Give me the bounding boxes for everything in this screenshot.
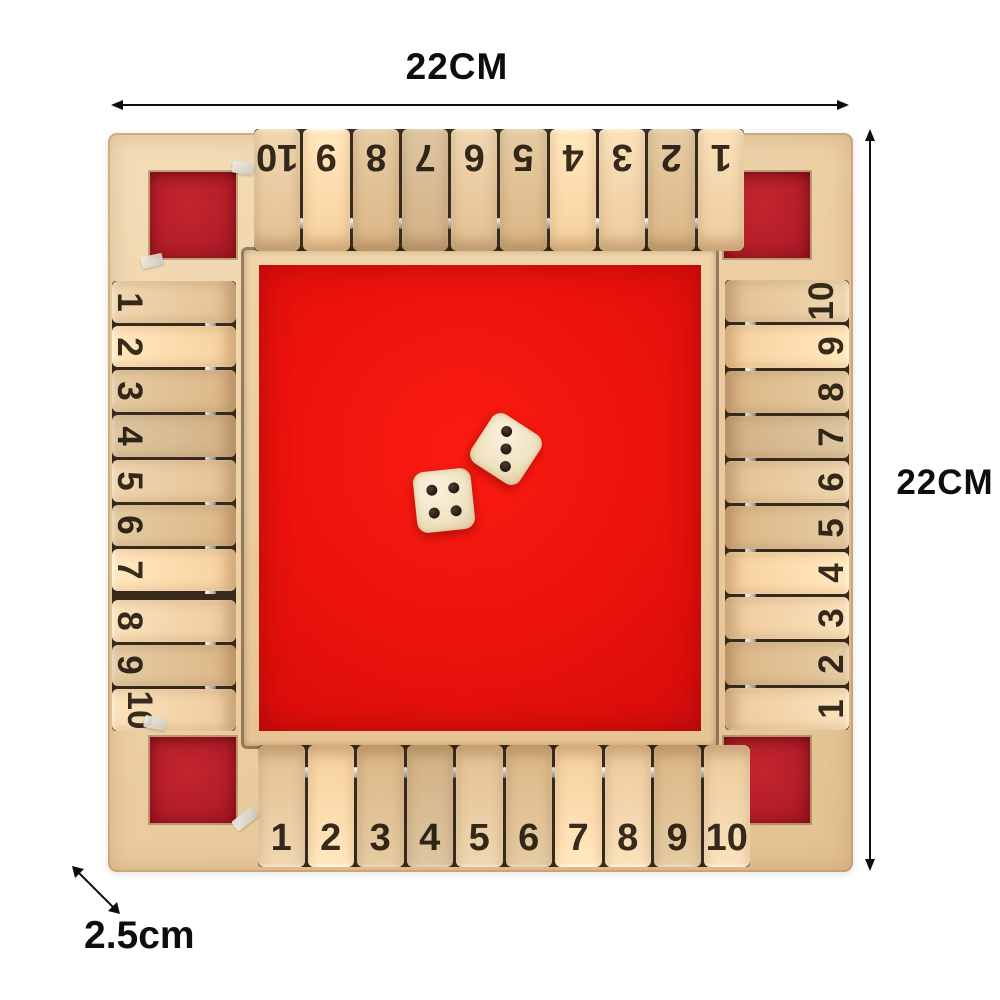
tile-number: 5: [112, 471, 147, 490]
tile-6: 6: [451, 129, 497, 251]
tile-number: 7: [402, 138, 448, 176]
game-board: 10987654321 12345678910 12345678910 1098…: [108, 133, 853, 872]
inner-rail-frame: [244, 250, 716, 746]
tile-number: 9: [654, 819, 701, 857]
tile-2: 2: [648, 129, 694, 251]
tile-number: 10: [804, 282, 839, 321]
tile-9: 9: [725, 325, 849, 367]
die-pip: [426, 484, 438, 496]
tile-number: 1: [698, 138, 744, 176]
die-showing-four: [412, 467, 476, 534]
product-photo-shut-the-box: 22CM 22CM 2.5cm 10987654321 12345678910 …: [0, 0, 1000, 1000]
corner-red-bottom-left: [150, 737, 236, 823]
die-pip: [428, 507, 440, 519]
height-dimension-arrow: [861, 128, 879, 872]
tile-1: 1: [112, 281, 236, 323]
tile-number: 5: [814, 518, 849, 537]
tile-1: 1: [698, 129, 744, 251]
tile-number: 5: [500, 138, 546, 176]
tile-number: 4: [814, 563, 849, 582]
tile-5: 5: [456, 745, 503, 867]
tile-number: 1: [112, 292, 147, 311]
tile-column-right: 10987654321: [725, 280, 849, 730]
tile-row-top: 10987654321: [254, 129, 744, 251]
tile-5: 5: [725, 506, 849, 548]
tile-5: 5: [500, 129, 546, 251]
corner-tab: [140, 253, 164, 269]
tile-number: 9: [112, 656, 147, 675]
tile-6: 6: [725, 461, 849, 503]
tile-number: 6: [506, 819, 553, 857]
die-pip: [448, 482, 460, 494]
tile-2: 2: [112, 326, 236, 368]
tile-3: 3: [725, 597, 849, 639]
tile-number: 3: [599, 138, 645, 176]
width-dimension-label: 22CM: [406, 48, 509, 85]
tile-number: 8: [353, 138, 399, 176]
tile-number: 7: [112, 560, 147, 579]
tile-9: 9: [654, 745, 701, 867]
tile-number: 4: [112, 426, 147, 445]
tile-6: 6: [112, 505, 236, 547]
tile-2: 2: [725, 642, 849, 684]
tile-number: 10: [254, 138, 300, 176]
tile-number: 10: [704, 819, 751, 857]
tile-2: 2: [308, 745, 355, 867]
die-pip: [499, 424, 514, 439]
tile-number: 3: [112, 382, 147, 401]
height-dimension-label: 22CM: [896, 465, 993, 500]
tile-number: 6: [814, 473, 849, 492]
red-felt-playfield: [259, 265, 701, 731]
tile-5: 5: [112, 460, 236, 502]
tile-number: 2: [648, 138, 694, 176]
tile-number: 8: [112, 611, 147, 630]
die-pip: [498, 459, 513, 474]
tile-10: 10: [704, 745, 751, 867]
thickness-dimension-label: 2.5cm: [84, 916, 195, 955]
tile-number: 4: [550, 138, 596, 176]
tile-number: 2: [112, 337, 147, 356]
tile-8: 8: [112, 600, 236, 642]
tile-number: 9: [303, 138, 349, 176]
tile-number: 3: [814, 608, 849, 627]
tile-number: 1: [258, 819, 305, 857]
tile-number: 3: [357, 819, 404, 857]
tile-number: 6: [112, 516, 147, 535]
tile-7: 7: [555, 745, 602, 867]
tile-1: 1: [258, 745, 305, 867]
tile-6: 6: [506, 745, 553, 867]
tile-10: 10: [112, 689, 236, 731]
tile-1: 1: [725, 688, 849, 730]
tile-4: 4: [112, 415, 236, 457]
tile-9: 9: [303, 129, 349, 251]
tile-8: 8: [725, 371, 849, 413]
width-dimension-arrow: [110, 96, 850, 114]
tile-7: 7: [402, 129, 448, 251]
tile-3: 3: [357, 745, 404, 867]
die-pip: [498, 441, 513, 456]
tile-10: 10: [725, 280, 849, 322]
tile-number: 7: [814, 427, 849, 446]
tile-3: 3: [112, 370, 236, 412]
tile-number: 2: [814, 654, 849, 673]
tile-8: 8: [605, 745, 652, 867]
tile-4: 4: [725, 552, 849, 594]
tile-4: 4: [550, 129, 596, 251]
tile-number: 1: [814, 699, 849, 718]
tile-10: 10: [254, 129, 300, 251]
tile-number: 9: [814, 337, 849, 356]
tile-8: 8: [353, 129, 399, 251]
corner-red-top-left: [150, 172, 236, 258]
tile-number: 5: [456, 819, 503, 857]
tile-7: 7: [725, 416, 849, 458]
tile-number: 8: [814, 382, 849, 401]
tile-number: 6: [451, 138, 497, 176]
tile-number: 7: [555, 819, 602, 857]
tile-column-left: 12345678910: [112, 281, 236, 731]
tile-3: 3: [599, 129, 645, 251]
tile-7: 7: [112, 549, 236, 591]
die-pip: [450, 505, 462, 517]
tile-number: 2: [308, 819, 355, 857]
tile-9: 9: [112, 645, 236, 687]
tile-number: 4: [407, 819, 454, 857]
tile-number: 8: [605, 819, 652, 857]
tile-4: 4: [407, 745, 454, 867]
tile-row-bottom: 12345678910: [258, 745, 750, 867]
